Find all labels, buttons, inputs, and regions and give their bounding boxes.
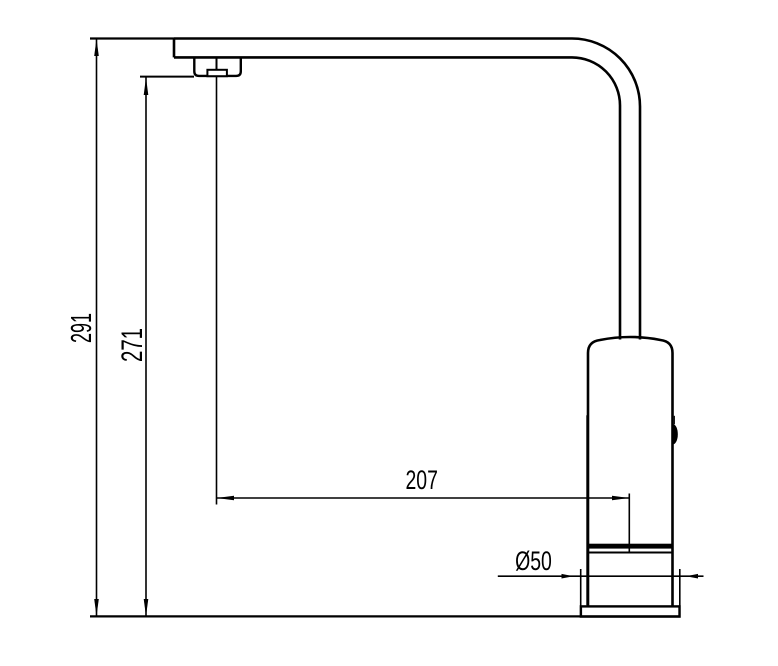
svg-text:271: 271 [116,328,149,362]
svg-text:207: 207 [405,465,437,495]
svg-text:291: 291 [66,313,98,343]
svg-text:Ø50: Ø50 [515,546,552,576]
